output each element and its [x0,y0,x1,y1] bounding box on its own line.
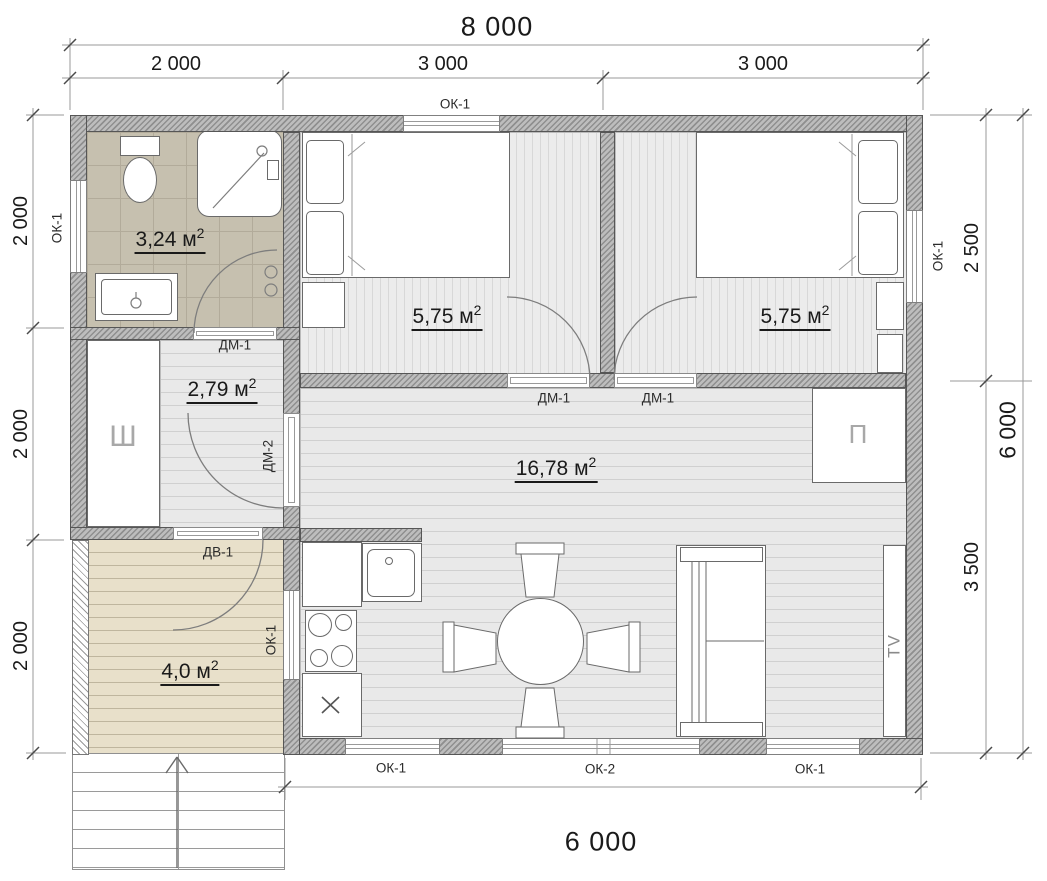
dim-top-seg-3: 3 000 [738,54,788,74]
sink-basin [101,279,172,315]
kitchen-counter [302,542,362,607]
dim-bottom-total: 6 000 [565,829,638,856]
dim-left-seg-1: 2 000 [11,196,31,246]
dim-right-total: 6 000 [997,401,1020,459]
sofa-armrest-top [680,547,763,562]
door-hallway [283,413,300,507]
bed1-pillow-2 [306,211,344,275]
window-tag-bottom-right: ОК-1 [795,762,825,776]
tv-label: TV [886,634,903,658]
window-tag-right: ОК-1 [931,241,945,271]
steps-divider [178,754,179,869]
window-porch [283,590,300,680]
door-entrance [173,527,263,540]
porch-floor [87,540,283,755]
dining-table [497,598,584,685]
dim-top-seg-1: 2 000 [151,54,201,74]
burner-2 [335,614,352,631]
door-bedroom2 [614,373,697,388]
wall-bedrooms-divider [600,132,615,373]
area-bathroom: 3,24 м2 [135,226,206,250]
bed2-nightstand [876,282,904,330]
window-tag-porch: ОК-1 [264,625,278,655]
entrance-steps [72,753,285,870]
sofa [676,545,766,737]
door-bedroom1 [507,373,590,388]
hallway-floor [160,340,285,529]
toilet-bowl [123,157,157,203]
floor-plan: 8 000 2 000 3 000 3 000 2 000 2 000 2 00… [0,0,1047,881]
door-tag-entrance: ДВ-1 [203,545,233,559]
area-porch: 4,0 м2 [160,658,219,682]
bed2-pillow-1 [858,140,898,204]
dim-right-seg-2: 3 500 [962,542,982,592]
bed2-pillow-2 [858,211,898,275]
shower-mixer [267,160,279,180]
bed1-nightstand [302,282,345,328]
sofa-armrest-bottom [680,722,763,737]
toilet-tank [120,136,160,156]
dim-left-seg-3: 2 000 [11,621,31,671]
window-bottom-left [345,738,440,755]
wall-bedrooms-south [300,373,906,388]
window-tag-left: ОК-1 [50,213,64,243]
dim-left-seg-2: 2 000 [11,409,31,459]
door-tag-bathroom: ДМ-1 [219,338,251,352]
area-bedroom1: 5,75 м2 [412,303,483,327]
window-tag-bottom-left: ОК-1 [376,761,406,775]
burner-1 [308,613,332,637]
door-tag-bedroom2: ДМ-1 [642,391,674,405]
window-tag-top: ОК-1 [440,97,470,111]
area-bedroom2: 5,75 м2 [760,303,831,327]
area-hallway: 2,79 м2 [187,376,258,400]
burner-4 [331,645,353,667]
door-tag-bedroom1: ДМ-1 [538,391,570,405]
window-bottom-center [502,738,700,755]
kitchen-sink-basin [367,549,415,597]
bed2-shelf [877,334,903,373]
window-tag-bottom-center: ОК-2 [585,762,615,776]
dim-right-seg-1: 2 500 [962,223,982,273]
window-top [403,115,500,132]
door-tag-hallway: ДМ-2 [261,440,275,472]
burner-3 [310,649,328,667]
dim-top-total: 8 000 [461,14,534,41]
dim-top-seg-2: 3 000 [418,54,468,74]
window-left [70,180,87,273]
porch-railing [72,540,89,755]
appliance-box [302,673,362,737]
window-bottom-right [766,738,860,755]
closet-letter: П [849,421,868,447]
bed1-pillow-1 [306,140,344,204]
window-right [906,210,923,303]
kitchen-faucet [385,557,393,565]
wardrobe-letter: Ш [109,422,137,452]
wall-kitchen-stub [300,528,422,542]
area-living: 16,78 м2 [515,455,598,479]
